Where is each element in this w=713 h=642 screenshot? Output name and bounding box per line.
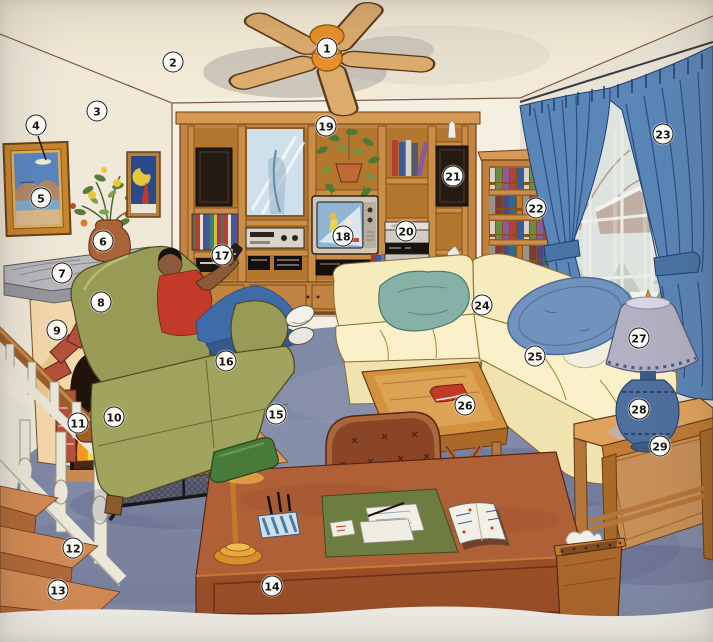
- callout-drapes: 23: [653, 124, 674, 145]
- callout-remote-control: 17: [212, 245, 233, 266]
- callout-throw-pillow: 24: [472, 295, 493, 316]
- callout-carpet: 15: [266, 404, 287, 425]
- callout-wall: 3: [87, 101, 108, 122]
- callout-lamp: 28: [629, 399, 650, 420]
- callout-brick: 9: [47, 320, 68, 341]
- callout-armchair: 16: [216, 351, 237, 372]
- callout-stereo-system: 20: [396, 221, 417, 242]
- callout-bookcase: 22: [526, 198, 547, 219]
- callout-painting: 5: [31, 188, 52, 209]
- callout-mantel: 7: [52, 263, 73, 284]
- callout-speaker: 21: [443, 166, 464, 187]
- callout-desk: 14: [262, 576, 283, 597]
- callout-ceiling: 2: [163, 52, 184, 73]
- callout-television: 18: [333, 226, 354, 247]
- callout-staircase: 13: [48, 580, 69, 601]
- callout-fire-screen: 10: [104, 407, 125, 428]
- callout-firewood: 11: [68, 413, 89, 434]
- living-room-illustration-page: 1234567891011121314151617181920212223242…: [0, 0, 713, 642]
- callout-layer: 1234567891011121314151617181920212223242…: [0, 0, 713, 642]
- callout-frame: 4: [26, 115, 47, 136]
- callout-coffee-table: 26: [455, 395, 476, 416]
- callout-wall-unit: 19: [316, 116, 337, 137]
- callout-end-table: 29: [650, 436, 671, 457]
- callout-fireplace: 8: [91, 292, 112, 313]
- callout-ceiling-fan: 1: [317, 38, 338, 59]
- callout-vase: 6: [93, 231, 114, 252]
- callout-lampshade: 27: [629, 328, 650, 349]
- callout-sofa: 25: [525, 346, 546, 367]
- callout-banister: 12: [63, 538, 84, 559]
